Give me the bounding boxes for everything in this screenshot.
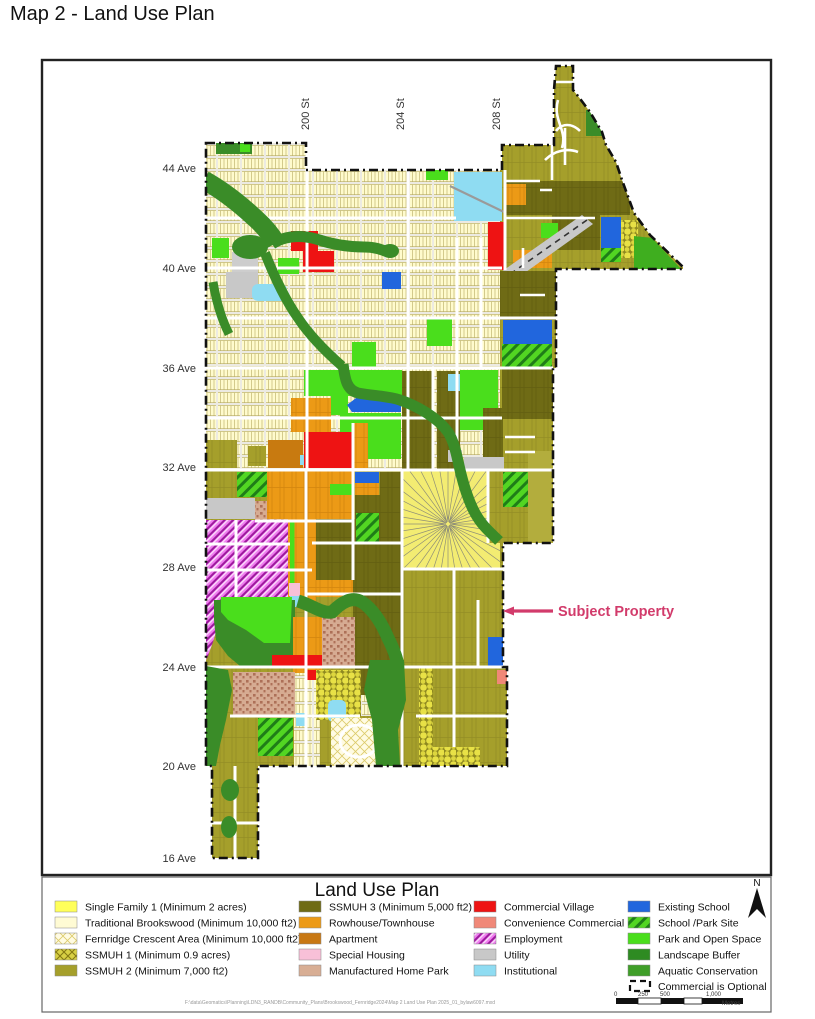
svg-text:Commercial Village: Commercial Village bbox=[504, 902, 594, 914]
svg-text:208 St: 208 St bbox=[491, 98, 503, 130]
svg-text:Existing School: Existing School bbox=[658, 902, 730, 914]
svg-text:Utility: Utility bbox=[504, 950, 530, 962]
svg-text:Metres: Metres bbox=[722, 1001, 740, 1007]
svg-text:1,000: 1,000 bbox=[706, 992, 722, 998]
svg-text:20 Ave: 20 Ave bbox=[163, 761, 196, 773]
svg-text:Convenience Commercial: Convenience Commercial bbox=[504, 918, 624, 930]
svg-text:40 Ave: 40 Ave bbox=[163, 263, 196, 275]
svg-text:36 Ave: 36 Ave bbox=[163, 363, 196, 375]
svg-text:Aquatic Conservation: Aquatic Conservation bbox=[658, 966, 758, 978]
svg-text:28 Ave: 28 Ave bbox=[163, 562, 196, 574]
svg-text:44 Ave: 44 Ave bbox=[163, 163, 196, 175]
svg-text:500: 500 bbox=[660, 992, 671, 998]
svg-text:Rowhouse/Townhouse: Rowhouse/Townhouse bbox=[329, 918, 435, 930]
svg-text:Park and Open Space: Park and Open Space bbox=[658, 934, 761, 946]
svg-text:SSMUH 3 (Minimum 5,000 ft2): SSMUH 3 (Minimum 5,000 ft2) bbox=[329, 902, 472, 914]
svg-text:Apartment: Apartment bbox=[329, 934, 378, 946]
svg-text:N: N bbox=[753, 878, 760, 889]
svg-text:Subject Property: Subject Property bbox=[558, 604, 674, 620]
svg-text:F:\data\Geomatics\Planning\LDN: F:\data\Geomatics\Planning\LDN3_RANDB\Co… bbox=[185, 1000, 495, 1006]
svg-text:Manufactured Home Park: Manufactured Home Park bbox=[329, 966, 449, 978]
svg-text:16 Ave: 16 Ave bbox=[163, 853, 196, 865]
svg-text:SSMUH 2 (Minimum 7,000 ft2): SSMUH 2 (Minimum 7,000 ft2) bbox=[85, 966, 228, 978]
svg-text:32 Ave: 32 Ave bbox=[163, 462, 196, 474]
svg-text:Single Family 1 (Minimum 2 acr: Single Family 1 (Minimum 2 acres) bbox=[85, 902, 247, 914]
svg-text:Traditional Brookswood (Minimu: Traditional Brookswood (Minimum 10,000 f… bbox=[85, 918, 296, 930]
svg-text:250: 250 bbox=[638, 992, 649, 998]
svg-text:204 St: 204 St bbox=[395, 98, 407, 130]
svg-text:24 Ave: 24 Ave bbox=[163, 662, 196, 674]
svg-text:Land Use Plan: Land Use Plan bbox=[315, 880, 440, 901]
svg-text:School /Park Site: School /Park Site bbox=[658, 918, 739, 930]
svg-text:Fernridge Crescent Area (Minim: Fernridge Crescent Area (Minimum 10,000 … bbox=[85, 934, 302, 946]
svg-text:Special Housing: Special Housing bbox=[329, 950, 405, 962]
svg-text:SSMUH 1 (Minimum 0.9 acres): SSMUH 1 (Minimum 0.9 acres) bbox=[85, 950, 230, 962]
svg-text:Institutional: Institutional bbox=[504, 966, 557, 978]
svg-text:Employment: Employment bbox=[504, 934, 562, 946]
svg-text:Landscape Buffer: Landscape Buffer bbox=[658, 950, 741, 962]
svg-text:200 St: 200 St bbox=[300, 98, 312, 130]
